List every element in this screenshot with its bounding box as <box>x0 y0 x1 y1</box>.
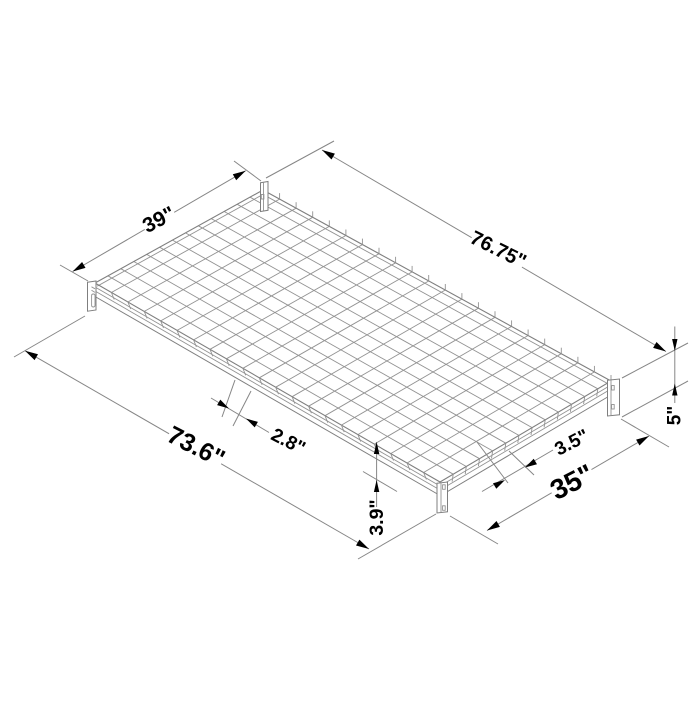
svg-text:3.9": 3.9" <box>366 499 388 535</box>
svg-text:5": 5" <box>665 406 686 426</box>
